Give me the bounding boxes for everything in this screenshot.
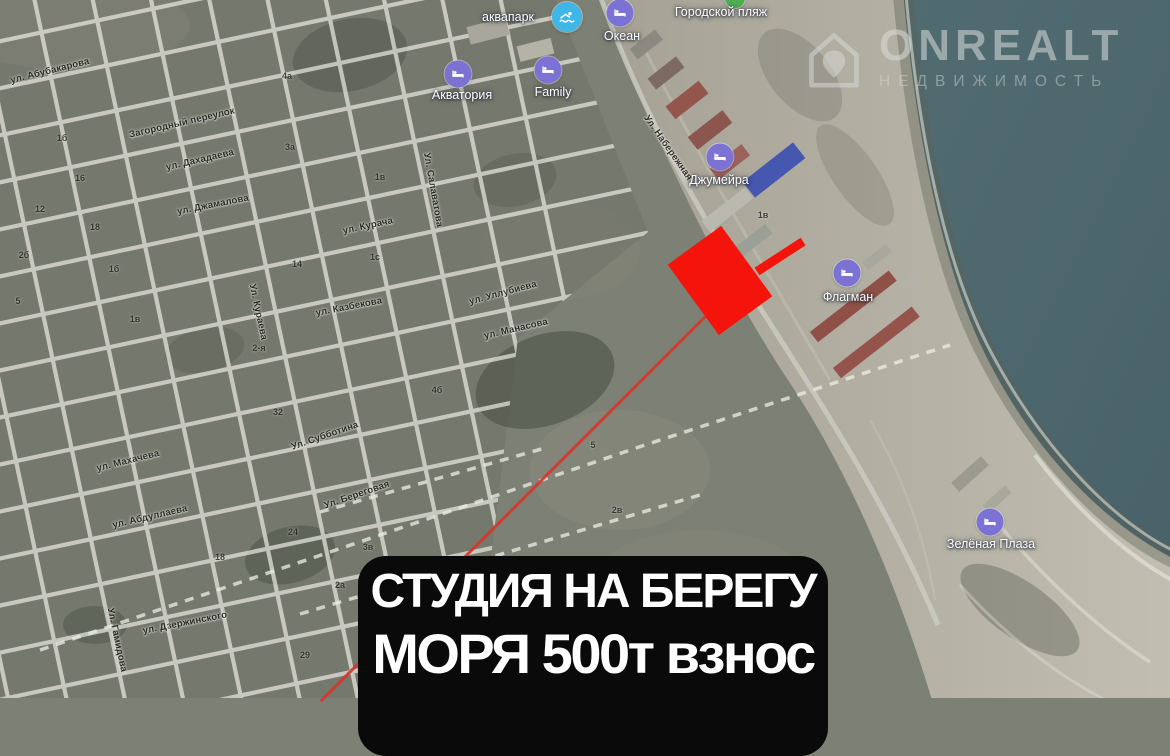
poi-label: Флагман <box>823 290 873 304</box>
real-estate-ad-screenshot: ул. Абубакарова Загородный переулок ул. … <box>0 0 1170 698</box>
hotel-bed-icon <box>613 6 628 21</box>
poi-label: Океан <box>604 29 640 43</box>
poi-marker-icon[interactable] <box>707 144 734 171</box>
poi-marker-icon[interactable] <box>445 61 472 88</box>
poi-marker-icon[interactable] <box>977 509 1004 536</box>
hotel-bed-icon <box>840 266 855 281</box>
poi-marker-icon[interactable] <box>552 2 582 32</box>
hotel-bed-icon <box>451 67 466 82</box>
hotel-bed-icon <box>983 515 998 530</box>
poi-marker-icon[interactable] <box>607 0 634 27</box>
poi-label: Джумейра <box>689 173 749 187</box>
poi-marker-icon[interactable] <box>535 57 562 84</box>
caption-line-1: СТУДИЯ НА БЕРЕГУ <box>370 568 815 616</box>
poi-label: Family <box>535 85 572 99</box>
poi-label: Зелёная Плаза <box>947 537 1035 551</box>
poi-label: аквапарк <box>482 10 534 24</box>
poi-label: Акватория <box>432 88 492 102</box>
poi-label: Городской пляж <box>675 5 767 19</box>
caption-line-2: МОРЯ 500т взнос <box>372 625 814 684</box>
hotel-bed-icon <box>713 150 728 165</box>
caption-banner: СТУДИЯ НА БЕРЕГУ МОРЯ 500т взнос <box>358 556 828 756</box>
hotel-bed-icon <box>541 63 556 78</box>
swimmer-icon <box>558 8 576 26</box>
poi-marker-icon[interactable] <box>834 260 861 287</box>
